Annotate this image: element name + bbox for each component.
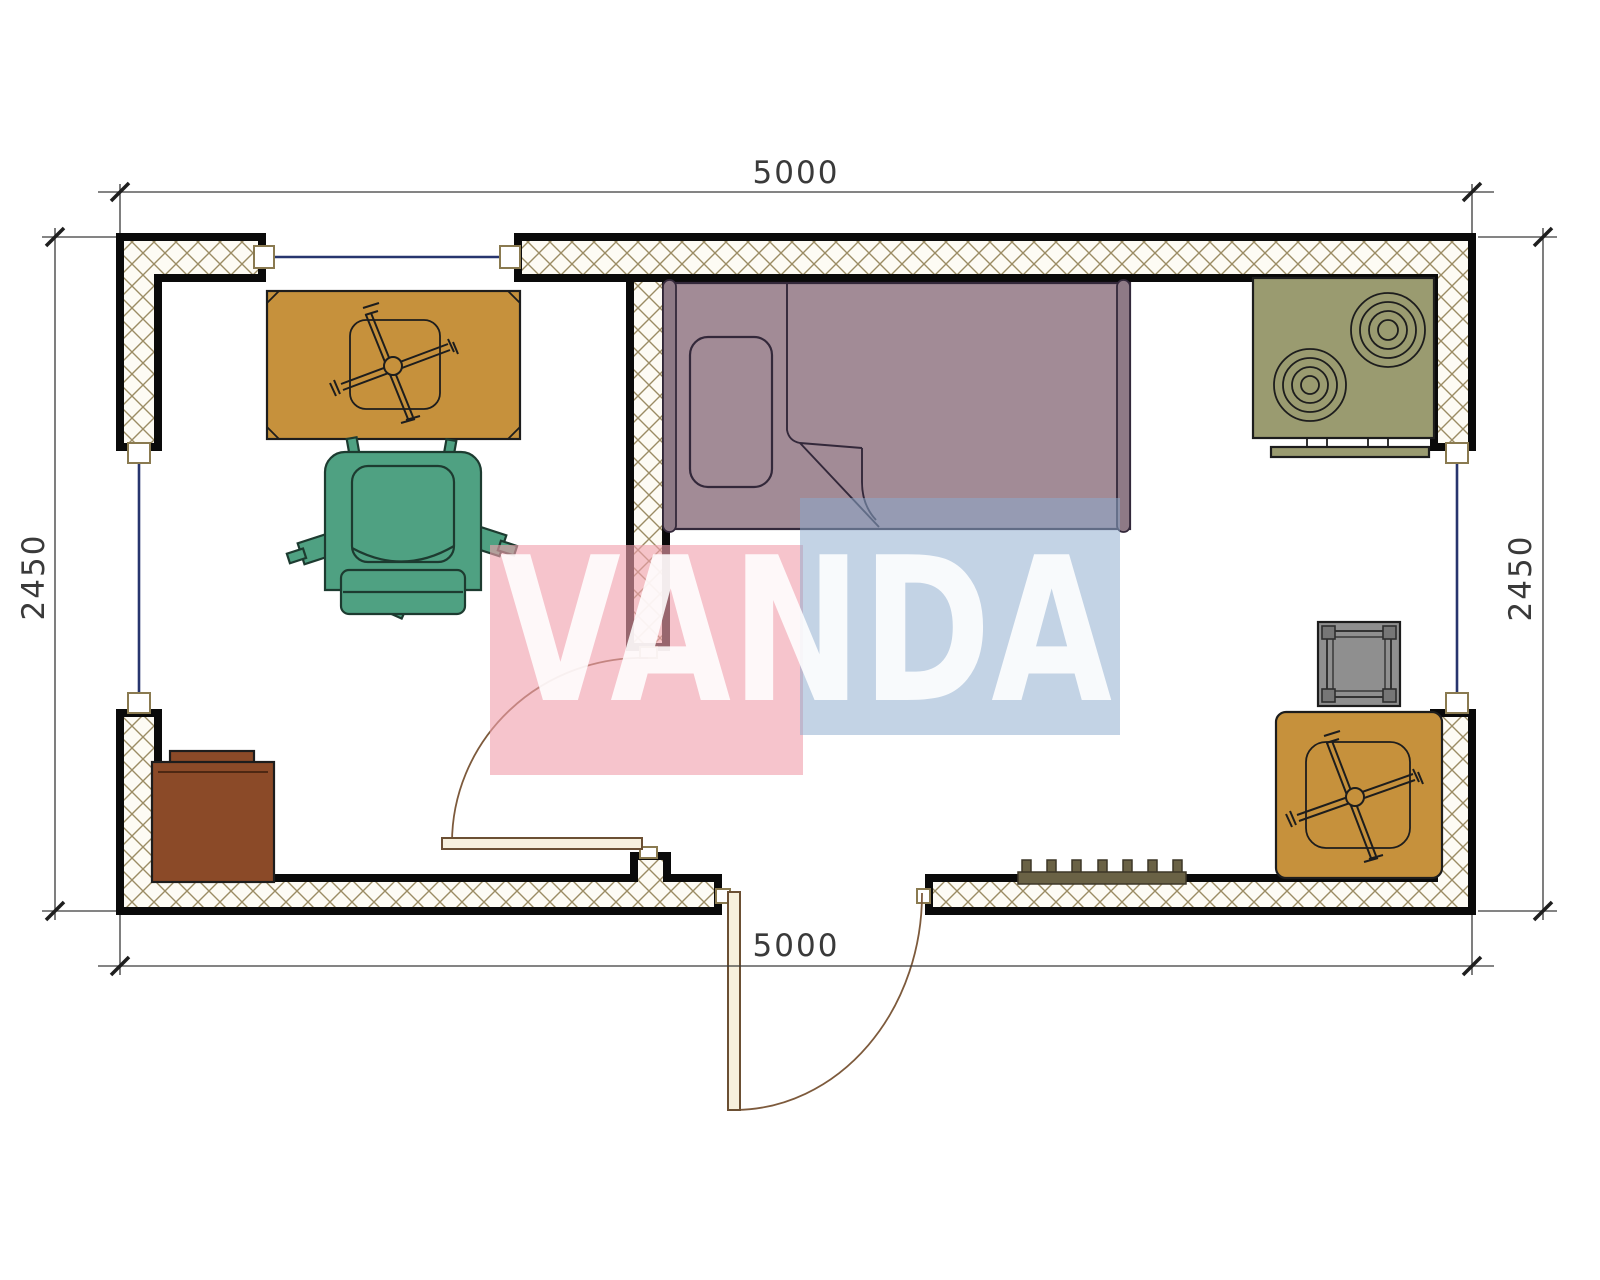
dimension-label-left: 2450 xyxy=(16,534,52,621)
radiator-fin xyxy=(1072,860,1081,873)
extension-lines xyxy=(42,237,116,911)
desk xyxy=(267,291,520,439)
bed-footboard xyxy=(1117,280,1130,532)
radiator-fin xyxy=(1148,860,1157,873)
dimension-label-right: 2450 xyxy=(1503,535,1539,622)
dimension-top: 5000 xyxy=(98,155,1494,233)
gray-table-leg xyxy=(1322,626,1335,639)
bed-headboard xyxy=(663,280,676,532)
window-frame xyxy=(500,246,520,268)
window-frame xyxy=(128,443,150,463)
radiator-fin xyxy=(1047,860,1056,873)
door-jamb xyxy=(917,889,930,903)
radiator-fin xyxy=(1123,860,1132,873)
entrance-door xyxy=(716,889,930,1110)
window-left xyxy=(128,443,150,713)
cabinet xyxy=(152,751,274,882)
door-leaf xyxy=(442,838,642,849)
gray-table xyxy=(1318,622,1400,706)
window-frame xyxy=(254,246,274,268)
dimension-right: 2450 xyxy=(1478,228,1557,920)
bed-pillow xyxy=(690,337,772,487)
stove xyxy=(1253,278,1434,457)
window-frame xyxy=(1446,693,1468,713)
radiator-fin xyxy=(1173,860,1182,873)
wall-top-left-corner xyxy=(120,237,262,447)
window-right xyxy=(1446,443,1468,713)
armchair xyxy=(287,437,517,618)
gray-table-leg xyxy=(1383,626,1396,639)
stove-control-panel xyxy=(1271,447,1429,457)
radiator-body xyxy=(1018,872,1186,884)
dimension-label-top: 5000 xyxy=(753,155,840,191)
dimension-bottom: 5000 xyxy=(98,915,1494,975)
window-frame xyxy=(128,693,150,713)
radiator-fin xyxy=(1022,860,1031,873)
cabinet-body xyxy=(152,762,274,882)
door-leaf xyxy=(728,892,740,1110)
watermark: VANDA xyxy=(490,498,1120,775)
watermark-text: VANDA xyxy=(500,515,1112,748)
gray-table-leg xyxy=(1383,689,1396,702)
floor-plan-page: 5000 5000 2450 2450 VANDA xyxy=(0,0,1600,1280)
side-table xyxy=(1276,712,1442,878)
gray-table-leg xyxy=(1322,689,1335,702)
bed xyxy=(663,280,1130,532)
dimension-left: 2450 xyxy=(16,228,116,920)
dimension-label-bottom: 5000 xyxy=(753,928,840,964)
window-top xyxy=(254,246,520,268)
stove-panel-links xyxy=(1307,438,1388,447)
radiator xyxy=(1018,860,1186,884)
radiator-fin xyxy=(1098,860,1107,873)
window-frame xyxy=(1446,443,1468,463)
stove-body xyxy=(1253,278,1434,438)
door-swing-arc xyxy=(737,893,922,1110)
floor-plan-drawing: 5000 5000 2450 2450 VANDA xyxy=(0,0,1600,1280)
